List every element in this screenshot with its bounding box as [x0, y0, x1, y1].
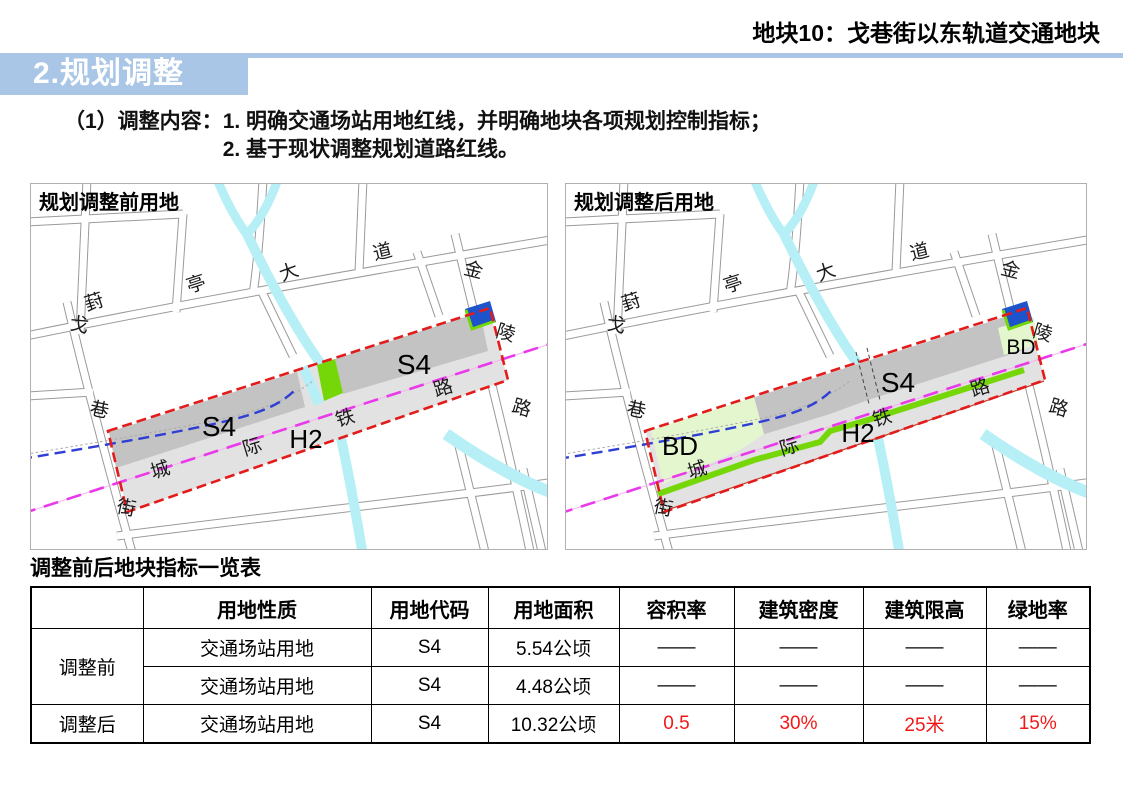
slide-page: 地块10：戈巷街以东轨道交通地块 2.规划调整 （1）调整内容： 1. 明确交通… — [0, 0, 1123, 794]
table-cell: —— — [619, 667, 734, 705]
street-label: 巷 — [88, 397, 111, 422]
table-cell: 交通场站用地 — [143, 667, 371, 705]
column-header-height: 建筑限高 — [863, 587, 986, 629]
table-cell-highlight: 30% — [734, 705, 863, 744]
column-header-area: 用地面积 — [488, 587, 619, 629]
column-header-far: 容积率 — [619, 587, 734, 629]
adjustment-content: （1）调整内容： 1. 明确交通场站用地红线，并明确地块各项规划控制指标； 2.… — [64, 108, 771, 164]
parcel-label-s4-right: S4 — [397, 349, 431, 380]
table-cell: 10.32公顷 — [488, 705, 619, 744]
table-cell: 5.54公顷 — [488, 629, 619, 667]
table-cell-highlight: 0.5 — [619, 705, 734, 744]
map-before-svg: S4 H2 S4 葑 亭 大 道 戈 巷 街 金 陵 路 城 际 铁 路 — [31, 184, 547, 549]
table-cell: —— — [986, 629, 1090, 667]
content-item-2: 2. 基于现状调整规划道路红线。 — [223, 136, 771, 164]
street-label: 亭 — [721, 271, 746, 298]
table-cell: 4.48公顷 — [488, 667, 619, 705]
table-cell: S4 — [371, 667, 488, 705]
table-cell: —— — [863, 667, 986, 705]
table-row: 交通场站用地 S4 4.48公顷 —— —— —— —— — [31, 667, 1090, 705]
street-label: 路 — [509, 395, 533, 421]
street-label: 巷 — [625, 397, 648, 422]
row-group-before: 调整前 — [31, 629, 143, 705]
map-after-title: 规划调整后用地 — [574, 186, 714, 215]
parcel-label-h2: H2 — [841, 418, 874, 448]
section-title: 2.规划调整 — [0, 53, 248, 95]
content-items: 1. 明确交通场站用地红线，并明确地块各项规划控制指标； 2. 基于现状调整规划… — [223, 108, 771, 164]
column-header-nature: 用地性质 — [143, 587, 371, 629]
row-group-after: 调整后 — [31, 705, 143, 744]
map-after-panel: 规划调整后用地 — [565, 183, 1087, 550]
table-cell: 交通场站用地 — [143, 629, 371, 667]
parcel-label-bd-left: BD — [662, 431, 698, 461]
map-before-title: 规划调整前用地 — [39, 186, 179, 215]
street-label: 街 — [115, 495, 138, 520]
street-label: 道 — [371, 239, 395, 265]
table-cell: —— — [863, 629, 986, 667]
column-header-code: 用地代码 — [371, 587, 488, 629]
street-label: 金 — [999, 257, 1023, 283]
table-cell: —— — [734, 667, 863, 705]
column-header-blank — [31, 587, 143, 629]
table-row: 调整后 交通场站用地 S4 10.32公顷 0.5 30% 25米 15% — [31, 705, 1090, 744]
street-label: 亭 — [184, 271, 209, 298]
plot-tag-heading: 地块10：戈巷街以东轨道交通地块 — [752, 14, 1100, 48]
table-cell: S4 — [371, 629, 488, 667]
street-label: 金 — [462, 257, 486, 283]
street-label: 街 — [652, 495, 675, 520]
parcel-label-h2: H2 — [289, 424, 322, 454]
content-item-1: 1. 明确交通场站用地红线，并明确地块各项规划控制指标； — [223, 108, 771, 136]
section-title-block: 2.规划调整 — [0, 53, 248, 95]
table-cell: 交通场站用地 — [143, 705, 371, 744]
street-label: 戈 — [68, 313, 91, 338]
table-header-row: 用地性质 用地代码 用地面积 容积率 建筑密度 建筑限高 绿地率 — [31, 587, 1090, 629]
map-after-svg: S4 H2 BD BD 葑 亭 大 道 戈 巷 街 金 陵 路 城 际 铁 路 — [566, 184, 1086, 549]
column-header-density: 建筑密度 — [734, 587, 863, 629]
table-cell: —— — [986, 667, 1090, 705]
table-cell: S4 — [371, 705, 488, 744]
street-label: 戈 — [605, 313, 628, 338]
parcel-label-s4-left: S4 — [202, 411, 236, 442]
column-header-green: 绿地率 — [986, 587, 1090, 629]
street-label: 道 — [908, 239, 932, 265]
content-label: （1）调整内容： — [64, 108, 223, 164]
table-row: 调整前 交通场站用地 S4 5.54公顷 —— —— —— —— — [31, 629, 1090, 667]
indicator-table: 用地性质 用地代码 用地面积 容积率 建筑密度 建筑限高 绿地率 调整前 交通场… — [30, 586, 1091, 744]
map-before-panel: 规划调整前用地 — [30, 183, 548, 550]
table-cell-highlight: 25米 — [863, 705, 986, 744]
parcel-label-s4: S4 — [881, 367, 915, 398]
table-cell: —— — [734, 629, 863, 667]
table-title: 调整前后地块指标一览表 — [30, 552, 261, 582]
table-cell-highlight: 15% — [986, 705, 1090, 744]
street-label: 路 — [1046, 395, 1070, 421]
table-cell: —— — [619, 629, 734, 667]
